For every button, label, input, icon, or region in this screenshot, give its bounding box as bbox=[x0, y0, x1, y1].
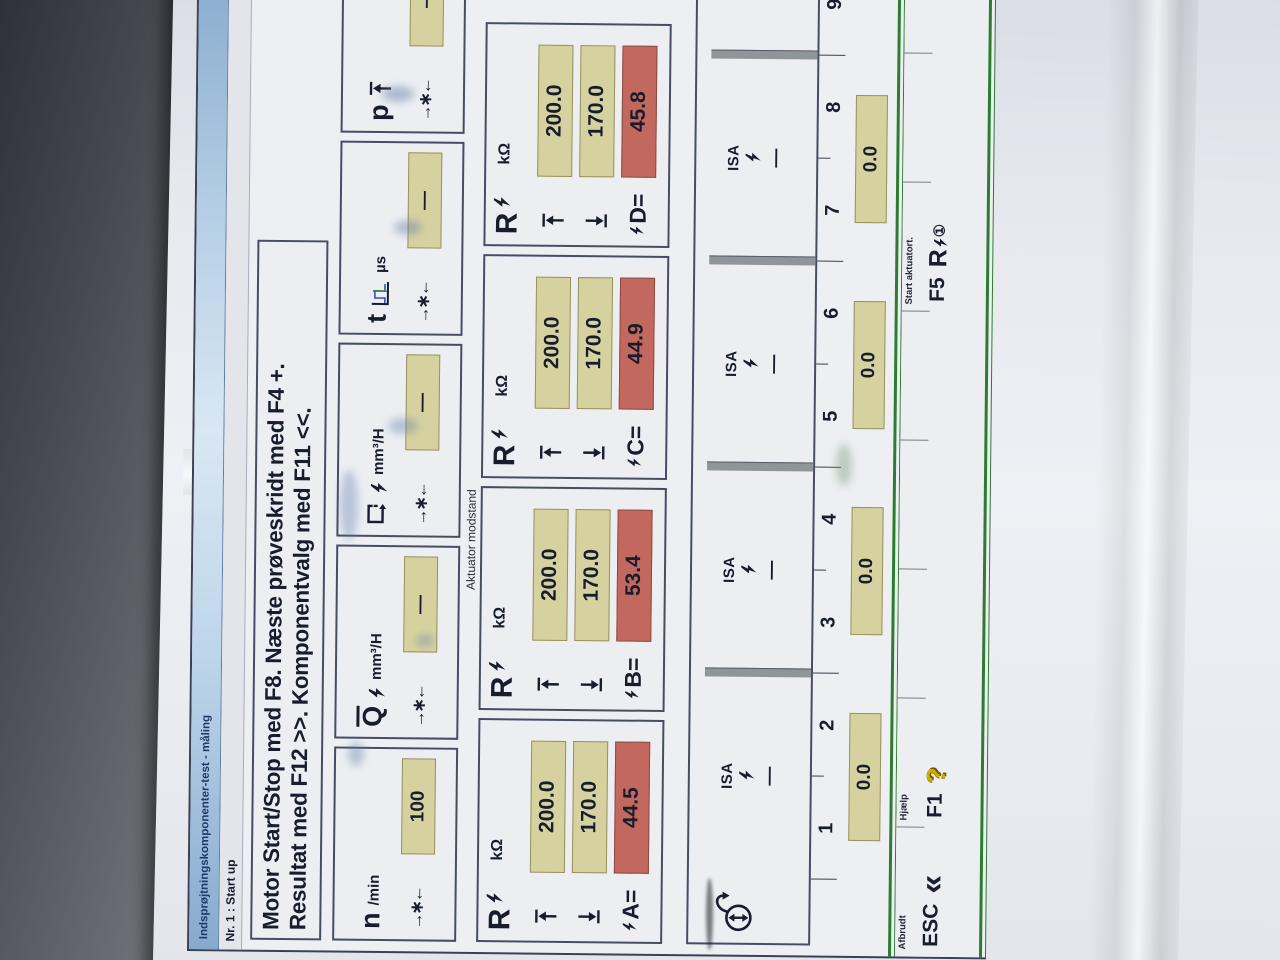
column-number: 1 bbox=[811, 777, 844, 880]
quantity-unit: mm³/H bbox=[368, 633, 387, 680]
f5-key-name: F5 bbox=[926, 277, 950, 302]
resistance-box-a: R kΩ 200.0 170.0 A= 44.5 bbox=[476, 718, 664, 944]
lightning-icon bbox=[741, 564, 758, 575]
setpoint-icon: →∗← bbox=[416, 79, 436, 121]
setpoint-icon: →∗← bbox=[411, 483, 431, 525]
help-icon: ? bbox=[921, 767, 952, 783]
time-unit: µs bbox=[372, 256, 391, 273]
lightning-icon bbox=[371, 482, 389, 494]
isa-zero-field[interactable]: 0.0 bbox=[852, 301, 885, 429]
limit-max-icon bbox=[535, 908, 559, 925]
isa-zero-field[interactable]: 0.0 bbox=[848, 713, 881, 841]
f3-key-empty[interactable] bbox=[899, 440, 984, 570]
measurement-row: n /min →∗← 100 Q mm³/H →∗← bbox=[332, 0, 467, 942]
pressure-value-field[interactable]: — bbox=[409, 0, 444, 47]
max-limit-field[interactable]: 200.0 bbox=[532, 509, 568, 641]
f1-key-label: Hjælp bbox=[898, 794, 909, 821]
resistance-unit: kΩ bbox=[494, 143, 514, 165]
speed-value-field[interactable]: 100 bbox=[401, 758, 436, 854]
isa-value: — bbox=[763, 355, 785, 374]
resistance-symbol: R bbox=[489, 676, 516, 698]
instruction-line-2: Resultat med F12 >>. Komponentvalg med F… bbox=[285, 252, 320, 930]
f6-key-empty[interactable] bbox=[903, 53, 988, 183]
f5-key[interactable]: Start aktuatort. F5 R ① bbox=[902, 182, 987, 312]
isa-value: — bbox=[761, 560, 783, 579]
lightning-icon bbox=[739, 770, 756, 781]
arrow-up-to-bar-icon bbox=[369, 80, 393, 97]
photo-stage: Indsprøjtningskomponenter-test - måling … bbox=[0, 0, 1280, 960]
return-flow-unit: mm³/H bbox=[370, 428, 389, 475]
group-divider-bar bbox=[711, 49, 817, 59]
result-value-a: 44.5 bbox=[614, 741, 650, 873]
setpoint-icon: →∗← bbox=[407, 887, 427, 929]
esc-key-label: Afbrudt bbox=[897, 915, 908, 949]
speed-unit: /min bbox=[365, 875, 384, 906]
limit-min-icon bbox=[584, 212, 608, 229]
measurement-box-return-flow: mm³/H →∗← — bbox=[336, 343, 462, 538]
f1-key-name: F1 bbox=[924, 793, 948, 818]
resistance-unit: kΩ bbox=[492, 375, 512, 397]
lightning-icon bbox=[743, 358, 760, 369]
window-title: Indsprøjtningskomponenter-test - måling bbox=[198, 715, 212, 939]
isa-group-5-6: ISA — bbox=[693, 260, 815, 467]
column-number: 9 bbox=[819, 0, 852, 56]
lightning-icon bbox=[491, 428, 509, 440]
column-number: 8 bbox=[818, 56, 851, 159]
quantity-symbol: Q bbox=[356, 706, 386, 727]
esc-key[interactable]: Afbrudt ESC « bbox=[895, 827, 980, 957]
f4-key-empty[interactable] bbox=[900, 311, 985, 441]
limit-min-icon bbox=[579, 676, 603, 693]
column-number: 7 bbox=[817, 159, 850, 262]
resistance-box-c: R kΩ 200.0 170.0 C= 44.9 bbox=[481, 254, 669, 480]
content-area: Motor Start/Stop med F8. Næste prøveskri… bbox=[242, 0, 895, 956]
pulse-waveform-icon bbox=[369, 280, 391, 307]
limit-max-icon bbox=[542, 212, 566, 229]
min-limit-field[interactable]: 170.0 bbox=[574, 509, 610, 641]
lightning-icon bbox=[369, 687, 387, 699]
min-limit-field[interactable]: 170.0 bbox=[577, 277, 613, 409]
lightning-icon bbox=[934, 238, 950, 248]
result-value-c: 44.9 bbox=[619, 277, 655, 409]
actuator-resistance-row: R kΩ 200.0 170.0 A= 44.5 bbox=[476, 0, 673, 944]
resistance-box-d: R kΩ 200.0 170.0 D= 45.8 bbox=[483, 22, 671, 248]
isa-value: — bbox=[765, 149, 787, 168]
quantity-value-field[interactable]: — bbox=[403, 556, 438, 652]
back-chevrons-icon: « bbox=[921, 879, 942, 894]
limit-min-icon bbox=[582, 444, 606, 461]
isa-label: ISA bbox=[725, 144, 742, 171]
measurement-box-pressure: p →∗← — bbox=[340, 0, 466, 134]
group-divider-bar bbox=[707, 461, 813, 471]
return-flow-icon bbox=[364, 501, 388, 525]
isa-zero-field[interactable]: 0.0 bbox=[855, 95, 888, 223]
lightning-icon bbox=[745, 152, 762, 163]
measurement-box-time: t µs →∗← — bbox=[338, 141, 464, 336]
tester-window: Indsprøjtningskomponenter-test - måling … bbox=[187, 0, 997, 959]
min-limit-field[interactable]: 170.0 bbox=[572, 741, 608, 873]
resistance-unit: kΩ bbox=[487, 839, 507, 861]
time-symbol: t bbox=[363, 314, 390, 323]
max-limit-field[interactable]: 200.0 bbox=[537, 45, 573, 177]
pressure-symbol: p bbox=[366, 104, 393, 121]
isa-columns: ISA — ISA — ISA — ISA bbox=[689, 0, 819, 880]
isa-value: — bbox=[759, 766, 781, 785]
lightning-icon bbox=[486, 892, 504, 904]
f1-key[interactable]: Hjælp F1 ? bbox=[896, 698, 981, 828]
setpoint-icon: →∗← bbox=[409, 685, 429, 727]
max-limit-field[interactable]: 200.0 bbox=[535, 277, 571, 409]
instruction-box: Motor Start/Stop med F8. Næste prøveskri… bbox=[250, 240, 328, 941]
result-label: D= bbox=[625, 193, 652, 223]
lightning-icon bbox=[630, 226, 646, 236]
column-number: 4 bbox=[814, 468, 847, 571]
status-text: Nr. 1 : Start up bbox=[223, 859, 238, 941]
measurement-box-quantity: Q mm³/H →∗← — bbox=[334, 545, 460, 740]
result-label: C= bbox=[622, 425, 649, 455]
esc-key-name: ESC bbox=[919, 903, 943, 946]
result-label: A= bbox=[617, 889, 644, 919]
function-key-bar: Afbrudt ESC « Hjælp F1 ? Start aktuatort… bbox=[895, 0, 990, 957]
result-value-b: 53.4 bbox=[616, 509, 652, 641]
result-label: B= bbox=[620, 657, 647, 687]
isa-section: ISA — ISA — ISA — ISA bbox=[686, 0, 820, 946]
max-limit-field[interactable]: 200.0 bbox=[530, 741, 566, 873]
return-flow-value-field[interactable]: — bbox=[405, 354, 440, 450]
limit-max-icon bbox=[540, 444, 564, 461]
limit-min-icon bbox=[577, 908, 601, 925]
f2-key-empty[interactable] bbox=[898, 569, 983, 699]
min-limit-field[interactable]: 170.0 bbox=[579, 45, 615, 177]
speed-symbol: n bbox=[357, 912, 384, 929]
isa-zero-field[interactable]: 0.0 bbox=[850, 507, 883, 635]
isa-label: ISA bbox=[721, 556, 738, 583]
f5-key-label: Start aktuatort. bbox=[904, 237, 916, 305]
resistance-symbol: R bbox=[491, 444, 518, 466]
column-number: 2 bbox=[812, 674, 845, 777]
group-divider-bar bbox=[705, 667, 811, 677]
start-actuator-icon: R ① bbox=[927, 224, 950, 268]
group-divider-bar bbox=[709, 255, 815, 265]
isa-label: ISA bbox=[723, 350, 740, 377]
column-number: 6 bbox=[816, 262, 849, 365]
resistance-symbol: R bbox=[486, 908, 513, 930]
isa-label: ISA bbox=[719, 762, 736, 789]
isa-group-3-4: ISA — bbox=[691, 466, 813, 673]
lightning-icon bbox=[489, 660, 507, 672]
paper-fold-vertical bbox=[1087, 0, 1199, 960]
f7-key-empty[interactable] bbox=[904, 0, 989, 54]
measurement-box-speed: n /min →∗← 100 bbox=[332, 747, 458, 942]
lightning-icon bbox=[625, 690, 641, 700]
isa-group-7-8: ISA — bbox=[695, 54, 817, 261]
result-value-d: 45.8 bbox=[621, 46, 657, 178]
lightning-icon bbox=[494, 196, 512, 208]
column-number: 5 bbox=[815, 365, 848, 468]
setpoint-icon: →∗← bbox=[413, 281, 433, 323]
resistance-box-b: R kΩ 200.0 170.0 B= 53.4 bbox=[478, 486, 666, 712]
limit-max-icon bbox=[537, 676, 561, 693]
isa-group-1-2: ISA — bbox=[689, 672, 811, 879]
injector-stroke-icon bbox=[706, 889, 754, 932]
lightning-icon bbox=[627, 458, 643, 468]
lightning-icon bbox=[623, 922, 639, 932]
column-number: 3 bbox=[813, 571, 846, 674]
resistance-symbol: R bbox=[493, 212, 520, 234]
resistance-unit: kΩ bbox=[489, 607, 509, 629]
time-value-field[interactable]: — bbox=[407, 152, 442, 248]
